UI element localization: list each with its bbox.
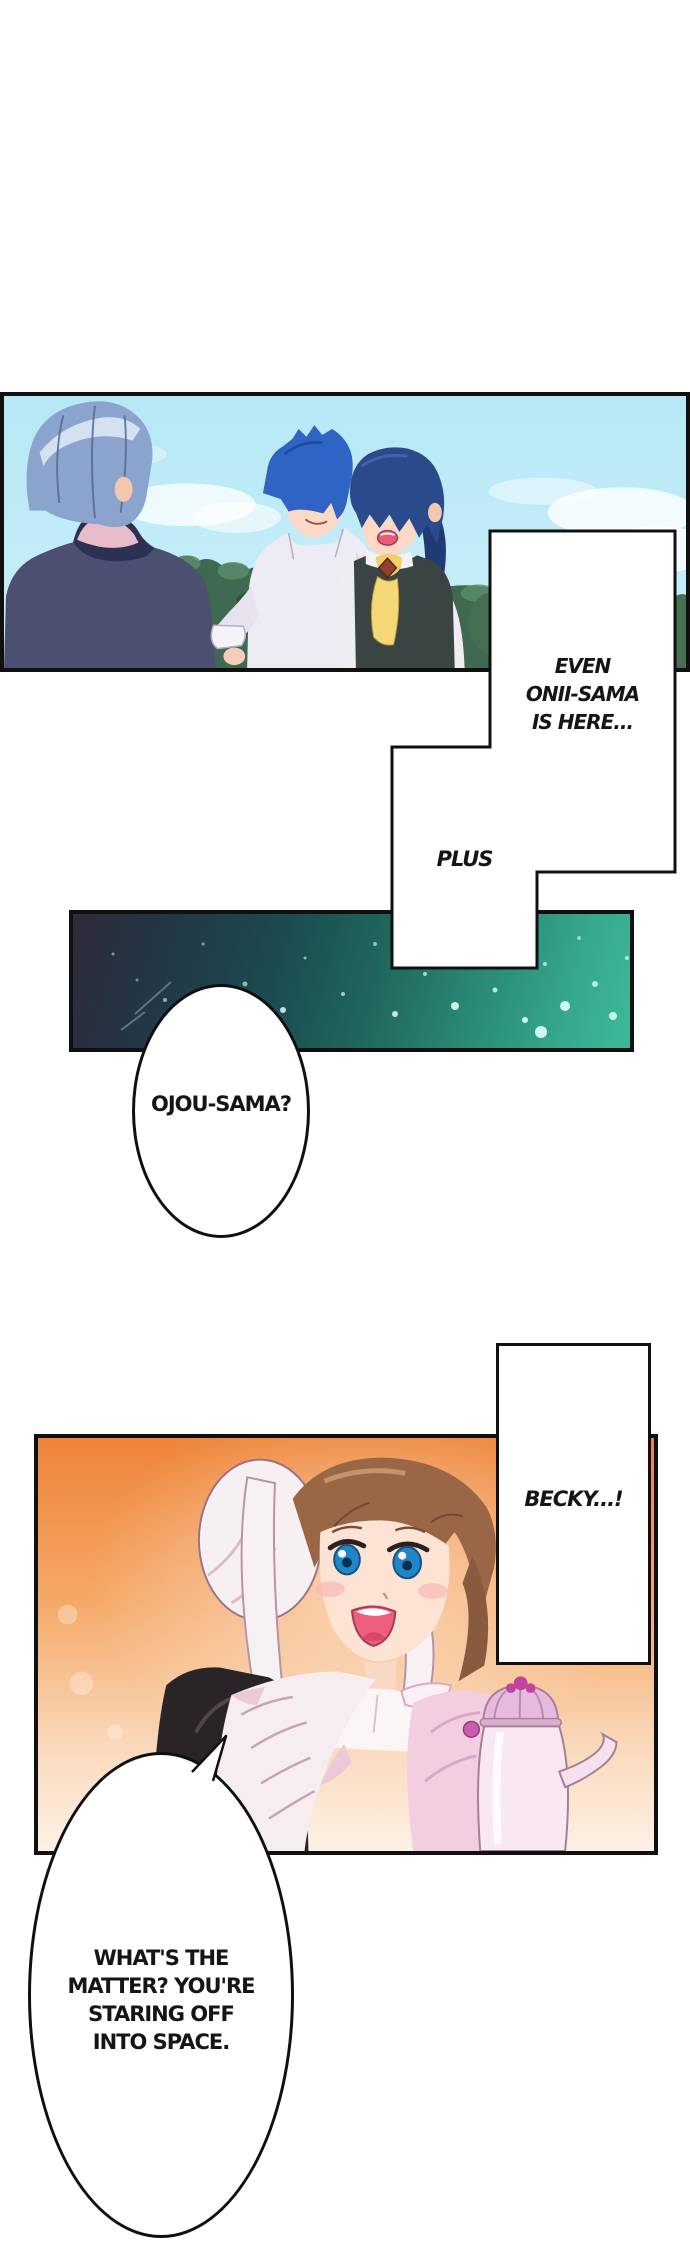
speech-line: ONII-SAMA xyxy=(490,680,675,708)
speech-line: INTO SPACE. xyxy=(28,2028,294,2056)
speech-text-plus: PLUS xyxy=(392,845,537,873)
speech-line: IS HERE... xyxy=(490,708,675,736)
speech-text-ojou: OJOU-SAMA? xyxy=(132,1090,310,1118)
speech-line: EVEN xyxy=(490,652,675,680)
speech-bubble-even-plus xyxy=(380,520,690,980)
speech-text-becky: BECKY...! xyxy=(496,1485,651,1513)
speech-text-matter: WHAT'S THE MATTER? YOU'RE STARING OFF IN… xyxy=(28,1944,294,2056)
speech-text-even: EVEN ONII-SAMA IS HERE... xyxy=(490,652,675,736)
speech-line: WHAT'S THE xyxy=(28,1944,294,1972)
speech-line: MATTER? YOU'RE xyxy=(28,1972,294,2000)
speech-bubble-matter-tail xyxy=(180,1726,250,1796)
speech-line: STARING OFF xyxy=(28,2000,294,2028)
manga-page: EVEN ONII-SAMA IS HERE... PLUS OJOU-SAMA… xyxy=(0,0,690,2255)
